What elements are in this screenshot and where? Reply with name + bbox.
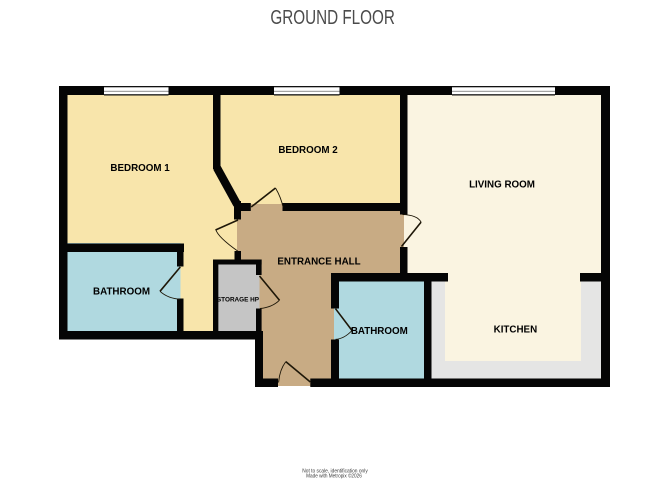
svg-text:LIVING ROOM: LIVING ROOM (469, 179, 535, 190)
svg-text:ENTRANCE HALL: ENTRANCE HALL (277, 256, 360, 267)
svg-text:STORAGE HP: STORAGE HP (217, 296, 260, 303)
svg-text:BATHROOM: BATHROOM (93, 287, 150, 298)
svg-text:BEDROOM 2: BEDROOM 2 (278, 145, 338, 156)
svg-text:KITCHEN: KITCHEN (494, 325, 538, 336)
svg-text:BEDROOM 1: BEDROOM 1 (110, 163, 170, 174)
svg-text:BATHROOM: BATHROOM (351, 326, 408, 337)
svg-text:GROUND FLOOR: GROUND FLOOR (270, 7, 395, 29)
svg-text:Made with Metropix ©2026: Made with Metropix ©2026 (306, 473, 362, 480)
